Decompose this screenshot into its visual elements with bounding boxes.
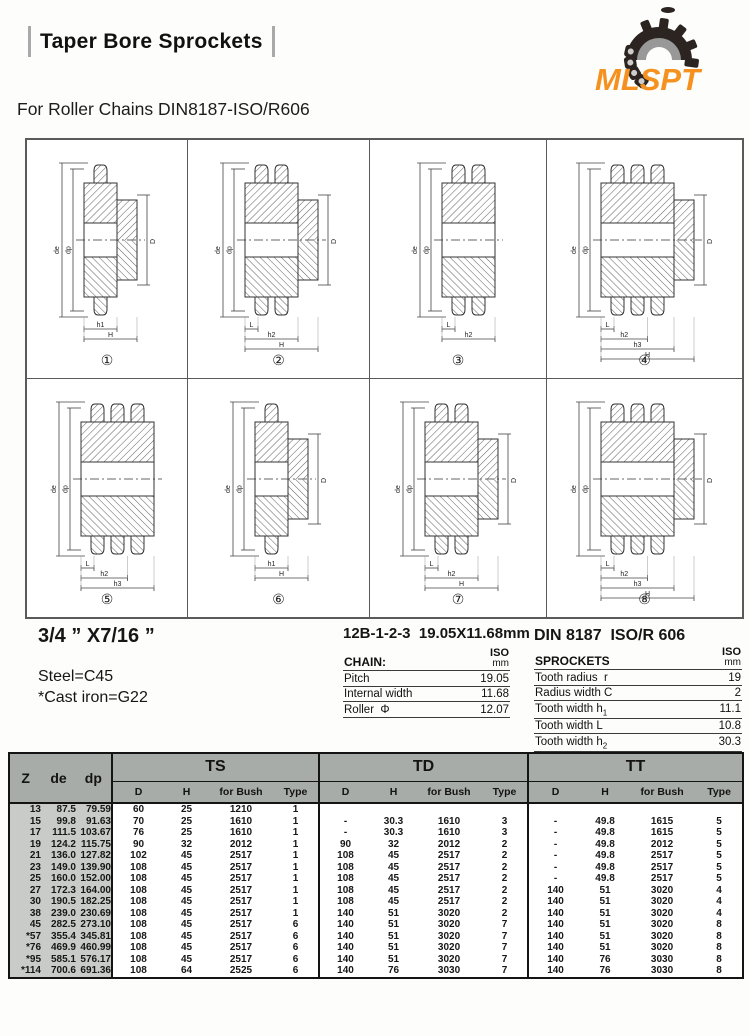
cell-ts: 32 <box>164 839 209 851</box>
cell-de: 239.0 <box>41 908 76 920</box>
cell-tt: 140 <box>528 908 582 920</box>
spec-row: Tooth width h230.3 <box>534 734 742 752</box>
spec-row: Tooth radius r19 <box>534 670 742 686</box>
table-row: 30190.5182.25108452517110845251721405130… <box>9 896 743 908</box>
group-header-ts: TS <box>112 753 319 781</box>
cell-tt: 5 <box>696 816 743 828</box>
cell-z: 45 <box>9 919 41 931</box>
page-title: Taper Bore Sprockets <box>40 30 263 54</box>
spec-label: Tooth width L <box>535 720 603 732</box>
cell-tt: 4 <box>696 885 743 897</box>
spec-row: Radius width C2 <box>534 686 742 702</box>
cell-tt: 4 <box>696 908 743 920</box>
spec-value: 11.1 <box>719 703 741 717</box>
chain-table-header: CHAIN: ISOmm <box>343 648 510 671</box>
catalog-page: { "header": { "title": "Taper Bore Sproc… <box>0 0 750 1036</box>
cell-dp: 115.75 <box>76 839 112 851</box>
cell-td: 45 <box>371 885 416 897</box>
cell-tt: 140 <box>528 954 582 966</box>
diagram-number: ① <box>27 352 187 369</box>
cell-tt <box>696 803 743 816</box>
cell-tt: 3020 <box>628 942 696 954</box>
sub-header-d: D <box>319 781 371 803</box>
cell-ts: 108 <box>112 931 164 943</box>
cell-z: 15 <box>9 816 41 828</box>
cell-z: *57 <box>9 931 41 943</box>
svg-text:h3: h3 <box>634 581 642 588</box>
cell-td: 2012 <box>416 839 482 851</box>
cell-tt: 51 <box>582 896 628 908</box>
sub-header-for-bush: for Bush <box>628 781 696 803</box>
cell-td: 108 <box>319 885 371 897</box>
cell-td: 30.3 <box>371 816 416 828</box>
svg-text:de: de <box>571 246 578 254</box>
diagram-number: ⑥ <box>188 591 369 608</box>
cell-tt: 1615 <box>628 816 696 828</box>
cell-tt: 1615 <box>628 827 696 839</box>
sprocket-panel-3: dedpLh2③ <box>370 140 547 379</box>
cell-ts: 6 <box>273 954 319 966</box>
cell-de: 355.4 <box>41 931 76 943</box>
cell-ts: 90 <box>112 839 164 851</box>
cell-de: 585.1 <box>41 954 76 966</box>
cell-ts: 25 <box>164 816 209 828</box>
cell-td: 140 <box>319 931 371 943</box>
cell-ts: 2517 <box>209 908 273 920</box>
spec-row: Tooth width L10.8 <box>534 719 742 735</box>
cell-td: 1610 <box>416 827 482 839</box>
cell-tt: 51 <box>582 919 628 931</box>
cell-td: 140 <box>319 942 371 954</box>
chain-table-title: CHAIN: <box>344 655 386 669</box>
cell-td: 2 <box>482 885 528 897</box>
svg-text:H: H <box>279 342 284 349</box>
cell-tt <box>528 803 582 816</box>
sprocket-panel-2: dedpDLh2H② <box>188 140 370 379</box>
cell-ts: 45 <box>164 850 209 862</box>
cell-ts: 76 <box>112 827 164 839</box>
cell-td: 7 <box>482 954 528 966</box>
cell-de: 172.3 <box>41 885 76 897</box>
sub-header-type: Type <box>273 781 319 803</box>
svg-text:h2: h2 <box>620 571 628 578</box>
cell-z: *114 <box>9 965 41 978</box>
cell-td: 45 <box>371 896 416 908</box>
cell-td: - <box>319 816 371 828</box>
cell-z: 19 <box>9 839 41 851</box>
sprocket-chain-logo-icon: MLSPT <box>583 2 735 96</box>
spec-value: 10.8 <box>719 720 741 732</box>
cell-tt: 140 <box>528 942 582 954</box>
cell-tt: 51 <box>582 885 628 897</box>
svg-text:H: H <box>107 332 112 339</box>
cell-tt: 49.8 <box>582 850 628 862</box>
svg-text:D: D <box>511 478 518 483</box>
table-row: 25160.0152.0010845251711084525172-49.825… <box>9 873 743 885</box>
cell-td: 51 <box>371 942 416 954</box>
cell-dp: 103.67 <box>76 827 112 839</box>
cell-td: 140 <box>319 908 371 920</box>
cell-tt: 8 <box>696 954 743 966</box>
cell-td: 3030 <box>416 965 482 978</box>
cell-td: 108 <box>319 850 371 862</box>
cell-ts: 45 <box>164 954 209 966</box>
diagram-number: ⑧ <box>547 591 742 608</box>
cell-td: 3020 <box>416 908 482 920</box>
svg-text:dp: dp <box>583 485 590 493</box>
cell-ts: 6 <box>273 965 319 978</box>
cell-ts: 45 <box>164 885 209 897</box>
cell-tt: 8 <box>696 942 743 954</box>
cell-tt: 8 <box>696 919 743 931</box>
svg-text:H: H <box>458 581 463 588</box>
cell-de: 282.5 <box>41 919 76 931</box>
chain-designation: 12B-1-2-3 19.05X11.68mm <box>343 625 530 642</box>
sprocket-panel-6: dedpDh1H⑥ <box>188 379 370 617</box>
cell-de: 149.0 <box>41 862 76 874</box>
svg-text:dp: dp <box>62 485 69 493</box>
title-left-bar <box>28 26 31 57</box>
cell-tt: 140 <box>528 896 582 908</box>
svg-text:dp: dp <box>583 246 590 254</box>
svg-text:h3: h3 <box>113 581 121 588</box>
cell-tt: 51 <box>582 931 628 943</box>
diagram-number: ③ <box>370 352 546 369</box>
cell-ts: 1210 <box>209 803 273 816</box>
svg-text:h1: h1 <box>268 561 276 568</box>
material-steel: Steel=C45 <box>38 666 148 687</box>
cell-ts: 45 <box>164 931 209 943</box>
cell-ts: 1 <box>273 816 319 828</box>
cell-tt <box>628 803 696 816</box>
sub-header-h: H <box>164 781 209 803</box>
cell-td: 2 <box>482 896 528 908</box>
cell-dp: 182.25 <box>76 896 112 908</box>
cell-ts: 2525 <box>209 965 273 978</box>
cell-tt <box>582 803 628 816</box>
group-header-td: TD <box>319 753 528 781</box>
spec-label: Roller Φ <box>344 704 390 716</box>
cell-td: 2517 <box>416 850 482 862</box>
cell-td: 3 <box>482 816 528 828</box>
cell-z: 17 <box>9 827 41 839</box>
cell-ts: 1 <box>273 839 319 851</box>
cell-tt: 49.8 <box>582 862 628 874</box>
pitch-size-label: 3/4 ” X7/16 ” <box>38 625 155 648</box>
chain-table-unit: ISOmm <box>490 648 509 669</box>
cell-tt: 3020 <box>628 931 696 943</box>
cell-tt: 3030 <box>628 965 696 978</box>
cell-z: 30 <box>9 896 41 908</box>
cell-ts: 1 <box>273 827 319 839</box>
spec-value: 19 <box>728 672 741 684</box>
cell-td: 2 <box>482 850 528 862</box>
cell-td: 2 <box>482 839 528 851</box>
cell-de: 469.9 <box>41 942 76 954</box>
cell-td: 51 <box>371 954 416 966</box>
cell-td: 108 <box>319 873 371 885</box>
cell-ts: 45 <box>164 908 209 920</box>
cell-tt: 5 <box>696 827 743 839</box>
svg-text:L: L <box>429 561 433 568</box>
chain-table-body: Pitch19.05Internal width11.68Roller Φ12.… <box>343 671 510 718</box>
cell-td: 1610 <box>416 816 482 828</box>
sub-header-d: D <box>112 781 164 803</box>
material-cast-iron: *Cast iron=G22 <box>38 687 148 708</box>
cell-tt: 2517 <box>628 862 696 874</box>
cell-dp: 139.90 <box>76 862 112 874</box>
cell-ts: 108 <box>112 954 164 966</box>
spec-row: Internal width11.68 <box>343 687 510 703</box>
table-row: 21136.0127.8210245251711084525172-49.825… <box>9 850 743 862</box>
table-row: 19124.2115.75903220121903220122-49.82012… <box>9 839 743 851</box>
cell-ts: 108 <box>112 885 164 897</box>
cell-de: 190.5 <box>41 896 76 908</box>
cell-z: 25 <box>9 873 41 885</box>
dimension-table: Z de dp TS TD TT DHfor BushTypeDHfor Bus… <box>8 752 744 979</box>
table-row: 23149.0139.9010845251711084525172-49.825… <box>9 862 743 874</box>
diagram-number: ⑦ <box>370 591 546 608</box>
cell-ts: 1 <box>273 803 319 816</box>
sprocket-panel-5: dedpLh2h3⑤ <box>27 379 188 617</box>
cell-tt: 76 <box>582 965 628 978</box>
svg-text:D: D <box>321 478 328 483</box>
cell-tt: 8 <box>696 965 743 978</box>
cell-ts: 45 <box>164 942 209 954</box>
cell-td: 108 <box>319 862 371 874</box>
cell-de: 160.0 <box>41 873 76 885</box>
cell-de: 87.5 <box>41 803 76 816</box>
cell-tt: 3020 <box>628 908 696 920</box>
sub-header-h: H <box>582 781 628 803</box>
cell-tt: - <box>528 862 582 874</box>
cell-td <box>416 803 482 816</box>
cell-ts: 108 <box>112 908 164 920</box>
material-spec: Steel=C45 *Cast iron=G22 <box>38 666 148 708</box>
cell-ts: 45 <box>164 919 209 931</box>
spec-value: 30.3 <box>719 736 741 750</box>
svg-text:L: L <box>85 561 89 568</box>
svg-text:L: L <box>606 322 610 329</box>
sprocket-panel-4: dedpDLh2h3H④ <box>547 140 742 379</box>
cell-dp: 152.00 <box>76 873 112 885</box>
table-row: 17111.5103.67762516101-30.316103-49.8161… <box>9 827 743 839</box>
cell-td: 51 <box>371 931 416 943</box>
cell-ts: 108 <box>112 862 164 874</box>
cell-tt: 5 <box>696 839 743 851</box>
diagram-number: ② <box>188 352 369 369</box>
cell-td: 2 <box>482 862 528 874</box>
table-row: *76469.9460.9910845251761405130207140513… <box>9 942 743 954</box>
cell-dp: 460.99 <box>76 942 112 954</box>
cell-ts: 6 <box>273 931 319 943</box>
cell-ts: 1 <box>273 908 319 920</box>
cell-tt: 140 <box>528 885 582 897</box>
svg-text:h2: h2 <box>447 571 455 578</box>
standard-label: DIN 8187 ISO/R 606 <box>534 627 685 645</box>
cell-dp: 691.36 <box>76 965 112 978</box>
spec-label: Internal width <box>344 688 412 700</box>
table-row: 1387.579.59602512101 <box>9 803 743 816</box>
spec-label: Tooth radius r <box>535 672 608 684</box>
svg-text:D: D <box>707 239 714 244</box>
cell-td: 90 <box>319 839 371 851</box>
cell-td: 51 <box>371 919 416 931</box>
cell-td: 7 <box>482 919 528 931</box>
cell-tt: 2517 <box>628 850 696 862</box>
cell-tt: 49.8 <box>582 816 628 828</box>
cell-tt: 49.8 <box>582 839 628 851</box>
spec-value: 2 <box>735 687 741 699</box>
cell-dp: 127.82 <box>76 850 112 862</box>
svg-text:dp: dp <box>237 485 244 493</box>
cell-dp: 230.69 <box>76 908 112 920</box>
cell-td: - <box>319 827 371 839</box>
spec-label: Radius width C <box>535 687 612 699</box>
cell-tt: 3030 <box>628 954 696 966</box>
table-row: *114700.6691.361086425256140763030714076… <box>9 965 743 978</box>
cell-td: 3020 <box>416 919 482 931</box>
svg-text:h2: h2 <box>464 332 472 339</box>
cell-ts: 45 <box>164 862 209 874</box>
cell-dp: 164.00 <box>76 885 112 897</box>
diagram-number: ⑤ <box>27 591 187 608</box>
cell-td: 3 <box>482 827 528 839</box>
svg-text:D: D <box>707 478 714 483</box>
cell-ts: 25 <box>164 803 209 816</box>
cell-tt: 140 <box>528 965 582 978</box>
svg-text:de: de <box>412 246 419 254</box>
cell-td: 32 <box>371 839 416 851</box>
brand-logo: MLSPT <box>583 2 735 101</box>
cell-tt: 5 <box>696 850 743 862</box>
table-row: 45282.5273.10108452517614051302071405130… <box>9 919 743 931</box>
page-title-block: Taper Bore Sprockets <box>28 26 275 57</box>
sub-header-row: DHfor BushTypeDHfor BushTypeDHfor BushTy… <box>9 781 743 803</box>
svg-text:de: de <box>571 485 578 493</box>
cell-ts: 108 <box>112 919 164 931</box>
spec-value: 12.07 <box>480 704 509 716</box>
sub-header-type: Type <box>696 781 743 803</box>
cell-de: 99.8 <box>41 816 76 828</box>
cell-dp: 345.81 <box>76 931 112 943</box>
cell-tt: 49.8 <box>582 827 628 839</box>
cell-tt: 8 <box>696 931 743 943</box>
svg-text:de: de <box>225 485 232 493</box>
cell-tt: - <box>528 827 582 839</box>
diagram-number: ④ <box>547 352 742 369</box>
svg-text:de: de <box>54 246 61 254</box>
cell-td: 51 <box>371 908 416 920</box>
svg-text:L: L <box>446 322 450 329</box>
cell-ts: 2012 <box>209 839 273 851</box>
table-row: *57355.4345.8110845251761405130207140513… <box>9 931 743 943</box>
spec-row: Tooth width h111.1 <box>534 701 742 719</box>
cell-z: 13 <box>9 803 41 816</box>
cell-ts: 102 <box>112 850 164 862</box>
cell-z: *76 <box>9 942 41 954</box>
spec-label: Tooth width h2 <box>535 736 607 750</box>
cell-td: 45 <box>371 873 416 885</box>
cell-ts: 1610 <box>209 816 273 828</box>
spec-value: 19.05 <box>480 673 509 685</box>
dimension-table-wrap: Z de dp TS TD TT DHfor BushTypeDHfor Bus… <box>8 752 744 979</box>
cell-ts: 1 <box>273 873 319 885</box>
cell-ts: 1 <box>273 850 319 862</box>
cell-tt: 140 <box>528 919 582 931</box>
table-row: 27172.3164.00108452517110845251721405130… <box>9 885 743 897</box>
cell-td: 140 <box>319 954 371 966</box>
svg-text:L: L <box>606 561 610 568</box>
spec-row: Roller Φ12.07 <box>343 702 510 718</box>
cell-z: *95 <box>9 954 41 966</box>
cell-ts: 2517 <box>209 954 273 966</box>
svg-text:h3: h3 <box>634 342 642 349</box>
table-row: 1599.891.63702516101-30.316103-49.816155 <box>9 816 743 828</box>
sprocket-panel-1: dedpDh1H① <box>27 140 188 379</box>
cell-td: 7 <box>482 965 528 978</box>
cell-tt: - <box>528 873 582 885</box>
sub-header-for-bush: for Bush <box>209 781 273 803</box>
cell-td: 7 <box>482 931 528 943</box>
svg-text:dp: dp <box>227 246 234 254</box>
cell-z: 38 <box>9 908 41 920</box>
table-row: *95585.1576.1710845251761405130207140763… <box>9 954 743 966</box>
sprockets-table-header: SPROCKETS ISOmm <box>534 647 742 670</box>
cell-tt: 5 <box>696 862 743 874</box>
sprockets-table-title: SPROCKETS <box>535 654 610 668</box>
page-subtitle: For Roller Chains DIN8187-ISO/R606 <box>17 99 310 120</box>
cell-td <box>371 803 416 816</box>
cell-ts: 1 <box>273 896 319 908</box>
cell-td: 45 <box>371 850 416 862</box>
cell-ts: 2517 <box>209 896 273 908</box>
z-de-dp-header: Z de dp <box>9 753 112 803</box>
sub-header-type: Type <box>482 781 528 803</box>
cell-td: 2 <box>482 873 528 885</box>
sub-header-h: H <box>371 781 416 803</box>
table-row: 38239.0230.69108452517114051302021405130… <box>9 908 743 920</box>
cell-dp: 576.17 <box>76 954 112 966</box>
cell-td: 2517 <box>416 896 482 908</box>
cell-ts: 64 <box>164 965 209 978</box>
cell-z: 27 <box>9 885 41 897</box>
cell-tt: 140 <box>528 931 582 943</box>
cell-de: 700.6 <box>41 965 76 978</box>
cell-td: 140 <box>319 965 371 978</box>
cell-ts: 2517 <box>209 862 273 874</box>
svg-text:dp: dp <box>406 485 413 493</box>
cell-ts: 1 <box>273 885 319 897</box>
cell-td: 7 <box>482 942 528 954</box>
cell-td: 30.3 <box>371 827 416 839</box>
spec-value: 11.68 <box>481 688 509 700</box>
cell-ts: 45 <box>164 873 209 885</box>
cell-tt: - <box>528 839 582 851</box>
cell-td: 2 <box>482 908 528 920</box>
cell-ts: 108 <box>112 896 164 908</box>
title-right-bar <box>272 26 275 57</box>
cell-z: 21 <box>9 850 41 862</box>
cell-td: 3020 <box>416 954 482 966</box>
cell-ts: 108 <box>112 942 164 954</box>
cell-ts: 1610 <box>209 827 273 839</box>
cell-ts: 25 <box>164 827 209 839</box>
cell-ts: 2517 <box>209 850 273 862</box>
cell-de: 111.5 <box>41 827 76 839</box>
svg-text:h2: h2 <box>620 332 628 339</box>
cell-ts: 60 <box>112 803 164 816</box>
